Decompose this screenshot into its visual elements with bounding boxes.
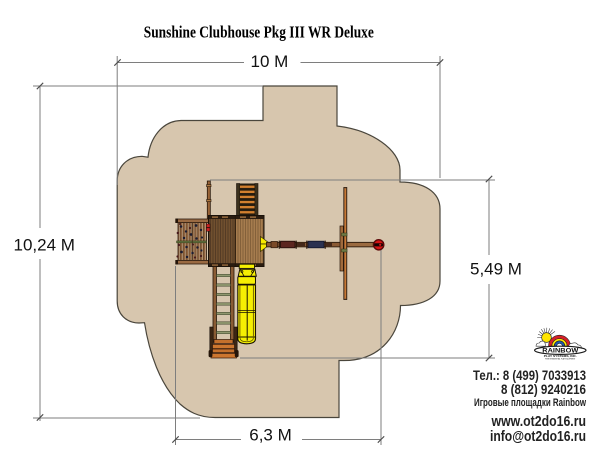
svg-text:6,3 M: 6,3 M [249,426,292,445]
svg-text:Тел.: 8 (499) 7033913: Тел.: 8 (499) 7033913 [473,368,586,383]
svg-text:info@ot2do16.ru: info@ot2do16.ru [490,429,586,445]
svg-text:10,24 M: 10,24 M [14,236,75,255]
svg-text:8 (812) 9240216: 8 (812) 9240216 [501,382,586,397]
svg-text:PLAY SYSTEMS, INC.: PLAY SYSTEMS, INC. [544,354,577,358]
svg-text:10 M: 10 M [251,52,289,71]
svg-text:5,49 M: 5,49 M [470,260,522,279]
svg-text:Игровые площадки Rainbow: Игровые площадки Rainbow [474,397,586,409]
svg-text:www.ot2do16.ru: www.ot2do16.ru [491,414,586,430]
svg-text:FINE RESIDENTIAL PLAY EQUIPMEN: FINE RESIDENTIAL PLAY EQUIPMENT [545,357,576,360]
svg-text:Sunshine Clubhouse Pkg III WR: Sunshine Clubhouse Pkg III WR Deluxe [144,23,374,42]
